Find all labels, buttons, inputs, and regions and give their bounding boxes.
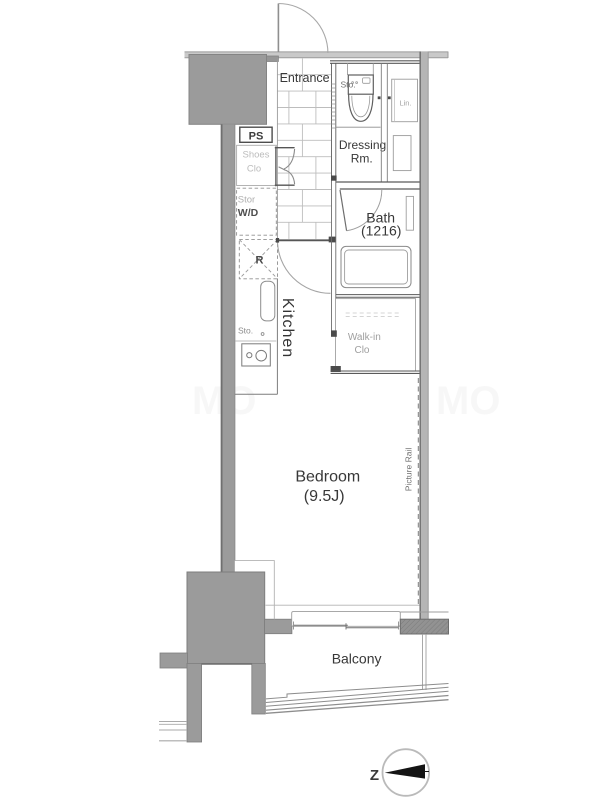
- svg-text:Kitchen: Kitchen: [279, 298, 296, 358]
- svg-text:Walk-in: Walk-in: [348, 332, 381, 343]
- svg-text:Clo: Clo: [354, 345, 369, 356]
- svg-text:Sto.: Sto.: [341, 79, 356, 89]
- svg-text:Shoes: Shoes: [243, 149, 270, 160]
- svg-text:(1216): (1216): [361, 222, 401, 238]
- svg-text:Dressing: Dressing: [339, 138, 386, 152]
- svg-text:R: R: [256, 255, 264, 267]
- svg-text:Picture Rail: Picture Rail: [404, 448, 414, 492]
- svg-text:Stor: Stor: [238, 195, 255, 206]
- svg-text:W/D: W/D: [238, 207, 259, 219]
- svg-text:Balcony: Balcony: [332, 650, 382, 666]
- svg-text:Entrance: Entrance: [280, 71, 330, 85]
- svg-text:Lin.: Lin.: [399, 99, 411, 108]
- svg-text:Rm.: Rm.: [351, 151, 373, 165]
- svg-text:Sto.: Sto.: [238, 325, 253, 335]
- svg-text:(9.5J): (9.5J): [304, 488, 345, 505]
- svg-text:PS: PS: [249, 131, 264, 143]
- svg-text:Bedroom: Bedroom: [295, 469, 360, 486]
- svg-text:MO: MO: [436, 379, 500, 423]
- svg-text:Z: Z: [370, 767, 379, 784]
- svg-text:Clo: Clo: [247, 163, 261, 174]
